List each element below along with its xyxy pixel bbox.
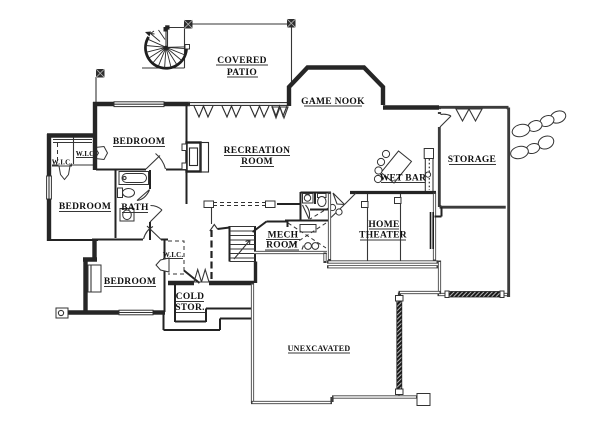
svg-text:UNEXCAVATED: UNEXCAVATED — [288, 344, 351, 353]
svg-text:BEDROOM: BEDROOM — [113, 137, 165, 147]
svg-text:RECREATION: RECREATION — [224, 146, 291, 156]
svg-text:ROOM: ROOM — [266, 241, 298, 251]
svg-text:W.I.C.: W.I.C. — [52, 159, 73, 167]
svg-text:ROOM: ROOM — [241, 157, 273, 167]
svg-text:STORAGE: STORAGE — [448, 155, 496, 165]
svg-text:BEDROOM: BEDROOM — [104, 277, 156, 287]
svg-text:COLD: COLD — [176, 292, 205, 302]
svg-text:W.I.C.: W.I.C. — [163, 251, 184, 259]
svg-text:STOR.: STOR. — [175, 303, 205, 313]
svg-text:BATH: BATH — [121, 203, 149, 213]
svg-text:THEATER: THEATER — [359, 231, 407, 241]
svg-text:BEDROOM: BEDROOM — [59, 202, 111, 212]
